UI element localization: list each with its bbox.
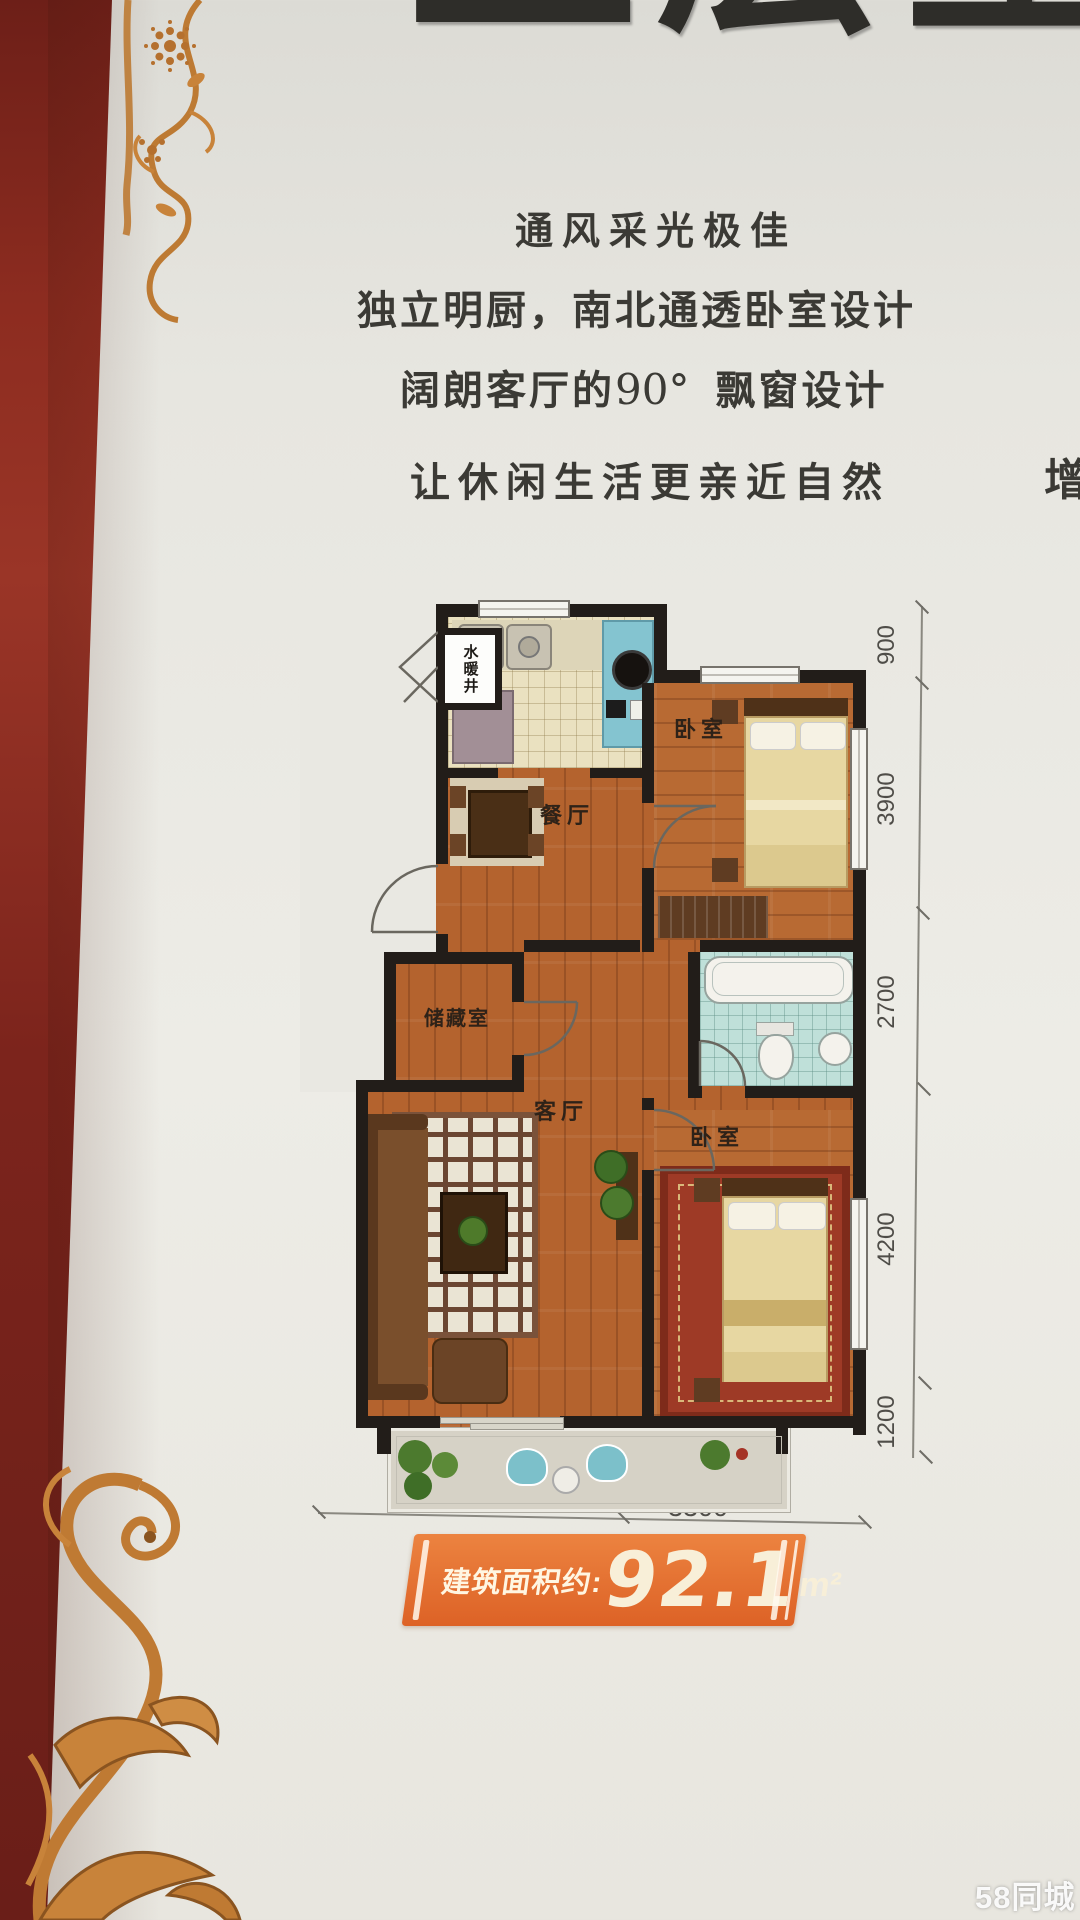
room-label-bedroom-bottom: 卧室 — [690, 1120, 744, 1152]
room-label-living: 客厅 — [534, 1094, 588, 1126]
area-banner: 建筑面积约: 92.1 m² — [402, 1534, 807, 1626]
ornament-bottom-left-icon — [0, 1185, 300, 1920]
angle-value: 90° — [615, 365, 689, 414]
feature-line-1: 通风采光极佳 — [515, 200, 797, 255]
area-label: 建筑面积约: — [439, 1559, 606, 1601]
feature-line-3: 阔朗客厅的90°飘窗设计 — [400, 358, 887, 416]
feature-line-4: 让休闲生活更亲近自然 — [410, 450, 890, 508]
page-title: 上层生活 — [408, 0, 1080, 48]
door-swing-overlay — [300, 560, 900, 1560]
ornament-top-left-icon — [100, 0, 260, 345]
feature-line-3-suffix: 飘窗设计 — [715, 368, 887, 414]
feature-line-3-text: 阔朗客厅的 — [400, 368, 615, 414]
area-unit: m² — [797, 1566, 844, 1605]
clipped-edge-character: 增 — [1044, 444, 1080, 508]
site-watermark: 58同城 — [975, 1872, 1075, 1917]
room-label-bedroom-top: 卧室 — [674, 712, 728, 744]
room-label-storage: 储藏室 — [424, 1002, 490, 1031]
dimension-line-right — [912, 606, 923, 1458]
feature-line-2: 独立明厨，南北通透卧室设计 — [357, 278, 916, 336]
utility-shaft: 水暖井 — [438, 628, 502, 710]
shaft-label: 水暖井 — [460, 644, 481, 695]
photo-of-floorplan-flyer: { "header": { "title": "上层生活" }, "featur… — [0, 0, 1080, 1920]
dimension-tick — [919, 1450, 933, 1464]
dimension-tick — [918, 1376, 932, 1390]
banner-stripe — [412, 1540, 429, 1620]
room-label-dining: 餐厅 — [540, 798, 594, 830]
dimension-tick — [917, 1082, 931, 1096]
